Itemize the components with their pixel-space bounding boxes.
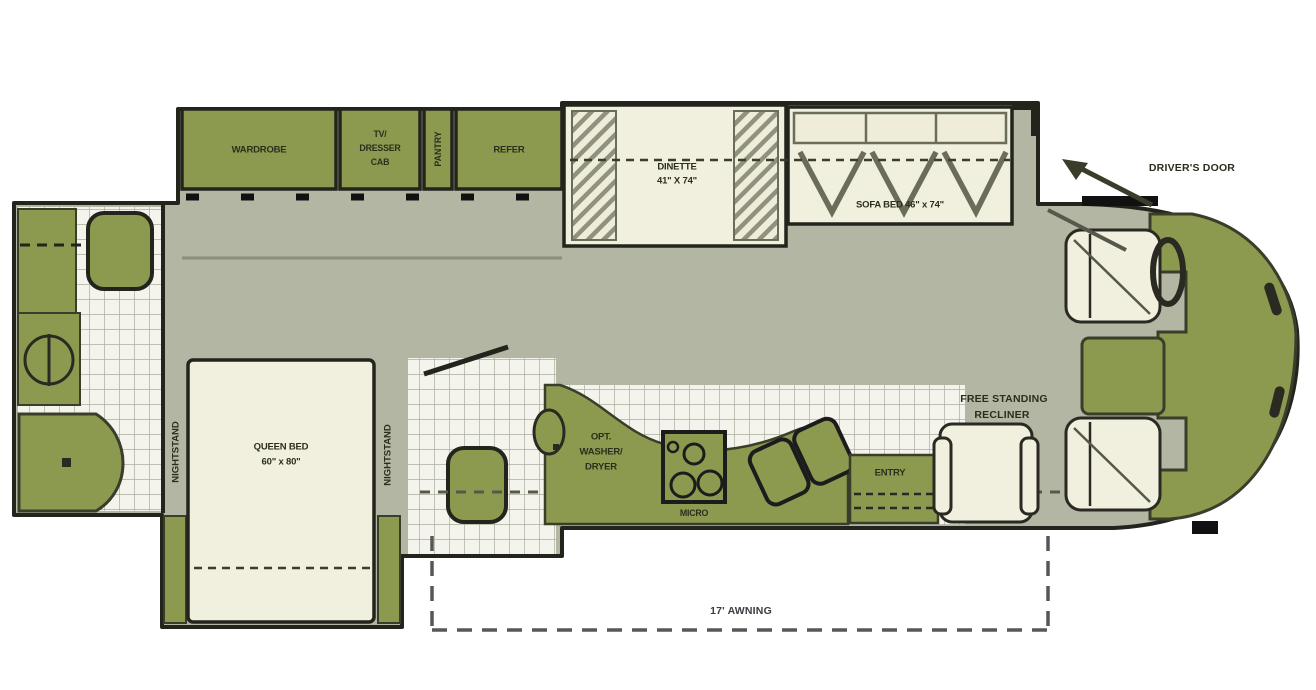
recliner-label-line2: RECLINER (974, 409, 1029, 421)
bath-vanity (18, 209, 76, 313)
nightstand-left-cabinet (164, 516, 186, 623)
tv-dresser-label-line3: CAB (371, 157, 389, 167)
stove-burners-icon (663, 432, 725, 502)
cockpit (1066, 214, 1296, 534)
floorplan-drawing (0, 0, 1316, 690)
queen-bed-label-line1: QUEEN BED (254, 443, 309, 454)
entry-steps (850, 455, 938, 523)
shower (19, 414, 123, 511)
sofa-bed-label: SOFA BED 46" x 74" (856, 201, 944, 212)
queen-bed-label-line2: 60" x 80" (262, 458, 301, 469)
queen-bed (188, 360, 374, 622)
drivers-door-label: DRIVER'S DOOR (1149, 162, 1235, 174)
rv-floorplan: WARDROBE TV/ DRESSER CAB PANTRY REFER DI… (0, 0, 1316, 690)
dinette-bench-right (734, 111, 778, 240)
recliner-label-line1: FREE STANDING (960, 393, 1048, 405)
tv-dresser-label-line2: DRESSER (359, 143, 400, 153)
half-bath (408, 347, 556, 554)
wardrobe-label: WARDROBE (232, 146, 287, 157)
dinette-bench-left (572, 111, 616, 240)
pantry-label: PANTRY (433, 131, 443, 166)
passenger-seat (1066, 418, 1160, 510)
recliner-chair (934, 424, 1038, 522)
dashboard (1150, 214, 1296, 519)
rear-bathroom (18, 205, 163, 513)
half-bath-toilet-icon (448, 448, 506, 522)
center-console (1082, 338, 1164, 414)
dinette-label-line2: 41" X 74" (657, 177, 697, 188)
tv-dresser-label-line1: TV/ (373, 129, 386, 139)
nightstand-right-cabinet (378, 516, 400, 623)
front-step (1192, 521, 1218, 534)
awning-label: 17' AWNING (710, 605, 772, 617)
kitchen-round-sink-icon (534, 410, 564, 454)
washer-dryer-label-line1: OPT. (591, 433, 611, 444)
refer-label: REFER (493, 146, 524, 157)
nightstand-right-label: NIGHTSTAND (383, 424, 394, 486)
bedroom-slide (164, 360, 400, 623)
toilet-icon (88, 213, 152, 289)
dinette-label-line1: DINETTE (657, 163, 696, 174)
micro-label: MICRO (680, 508, 708, 518)
washer-dryer-label-line2: WASHER/ (580, 448, 623, 459)
washer-dryer-label-line3: DRYER (585, 463, 617, 474)
sofa-back (794, 113, 1006, 143)
entry-label: ENTRY (875, 469, 906, 480)
nightstand-left-label: NIGHTSTAND (171, 421, 182, 483)
